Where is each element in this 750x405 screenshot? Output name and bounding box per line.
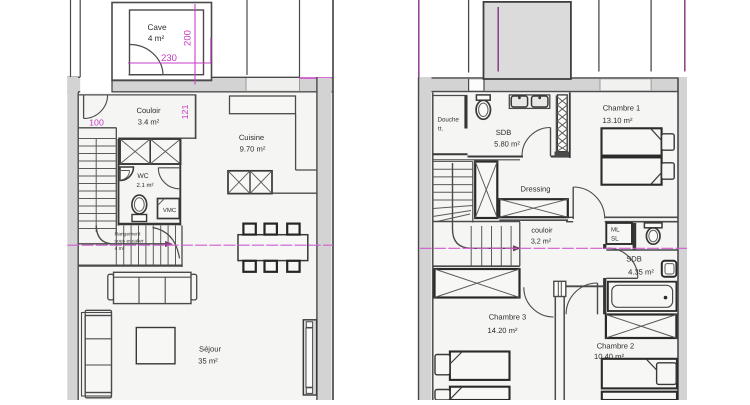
svg-text:Cave: Cave <box>147 23 167 32</box>
svg-text:tt.: tt. <box>438 126 443 133</box>
svg-text:14.20 m²: 14.20 m² <box>488 326 518 335</box>
svg-text:9.70 m²: 9.70 m² <box>240 145 266 154</box>
svg-text:SDB: SDB <box>496 128 512 137</box>
svg-text:WC: WC <box>137 173 148 180</box>
svg-text:Chambre 3: Chambre 3 <box>489 313 527 322</box>
svg-text:200: 200 <box>183 30 194 46</box>
svg-text:3.4 m²: 3.4 m² <box>138 118 160 127</box>
svg-text:2.1 m²: 2.1 m² <box>136 182 153 189</box>
svg-text:sous escalier: sous escalier <box>115 239 145 245</box>
svg-text:Rangement: Rangement <box>115 232 141 238</box>
svg-text:ML: ML <box>611 227 620 234</box>
svg-text:Dressing: Dressing <box>521 185 551 194</box>
svg-text:VMC: VMC <box>163 207 177 214</box>
svg-text:SDB: SDB <box>626 255 642 264</box>
svg-text:35 m²: 35 m² <box>198 357 218 366</box>
svg-text:13.10 m²: 13.10 m² <box>603 116 633 125</box>
svg-text:Chambre 1: Chambre 1 <box>603 104 641 113</box>
svg-text:Cuisine: Cuisine <box>239 133 264 142</box>
svg-text:SL: SL <box>611 236 619 243</box>
svg-text:Couloir: Couloir <box>136 106 161 115</box>
svg-text:couloir: couloir <box>531 226 553 235</box>
svg-text:4 m²: 4 m² <box>148 34 165 43</box>
svg-text:Séjour: Séjour <box>199 345 221 354</box>
svg-text:230: 230 <box>161 53 177 64</box>
svg-text:Douche: Douche <box>438 117 460 124</box>
svg-text:Chambre 2: Chambre 2 <box>597 342 635 351</box>
svg-text:100: 100 <box>89 118 104 128</box>
svg-text:5.80 m²: 5.80 m² <box>494 140 520 149</box>
svg-text:121: 121 <box>180 105 190 120</box>
svg-text:3,2 m²: 3,2 m² <box>531 237 552 246</box>
svg-text:4 m²: 4 m² <box>115 246 125 252</box>
svg-text:4.35 m²: 4.35 m² <box>628 268 654 277</box>
